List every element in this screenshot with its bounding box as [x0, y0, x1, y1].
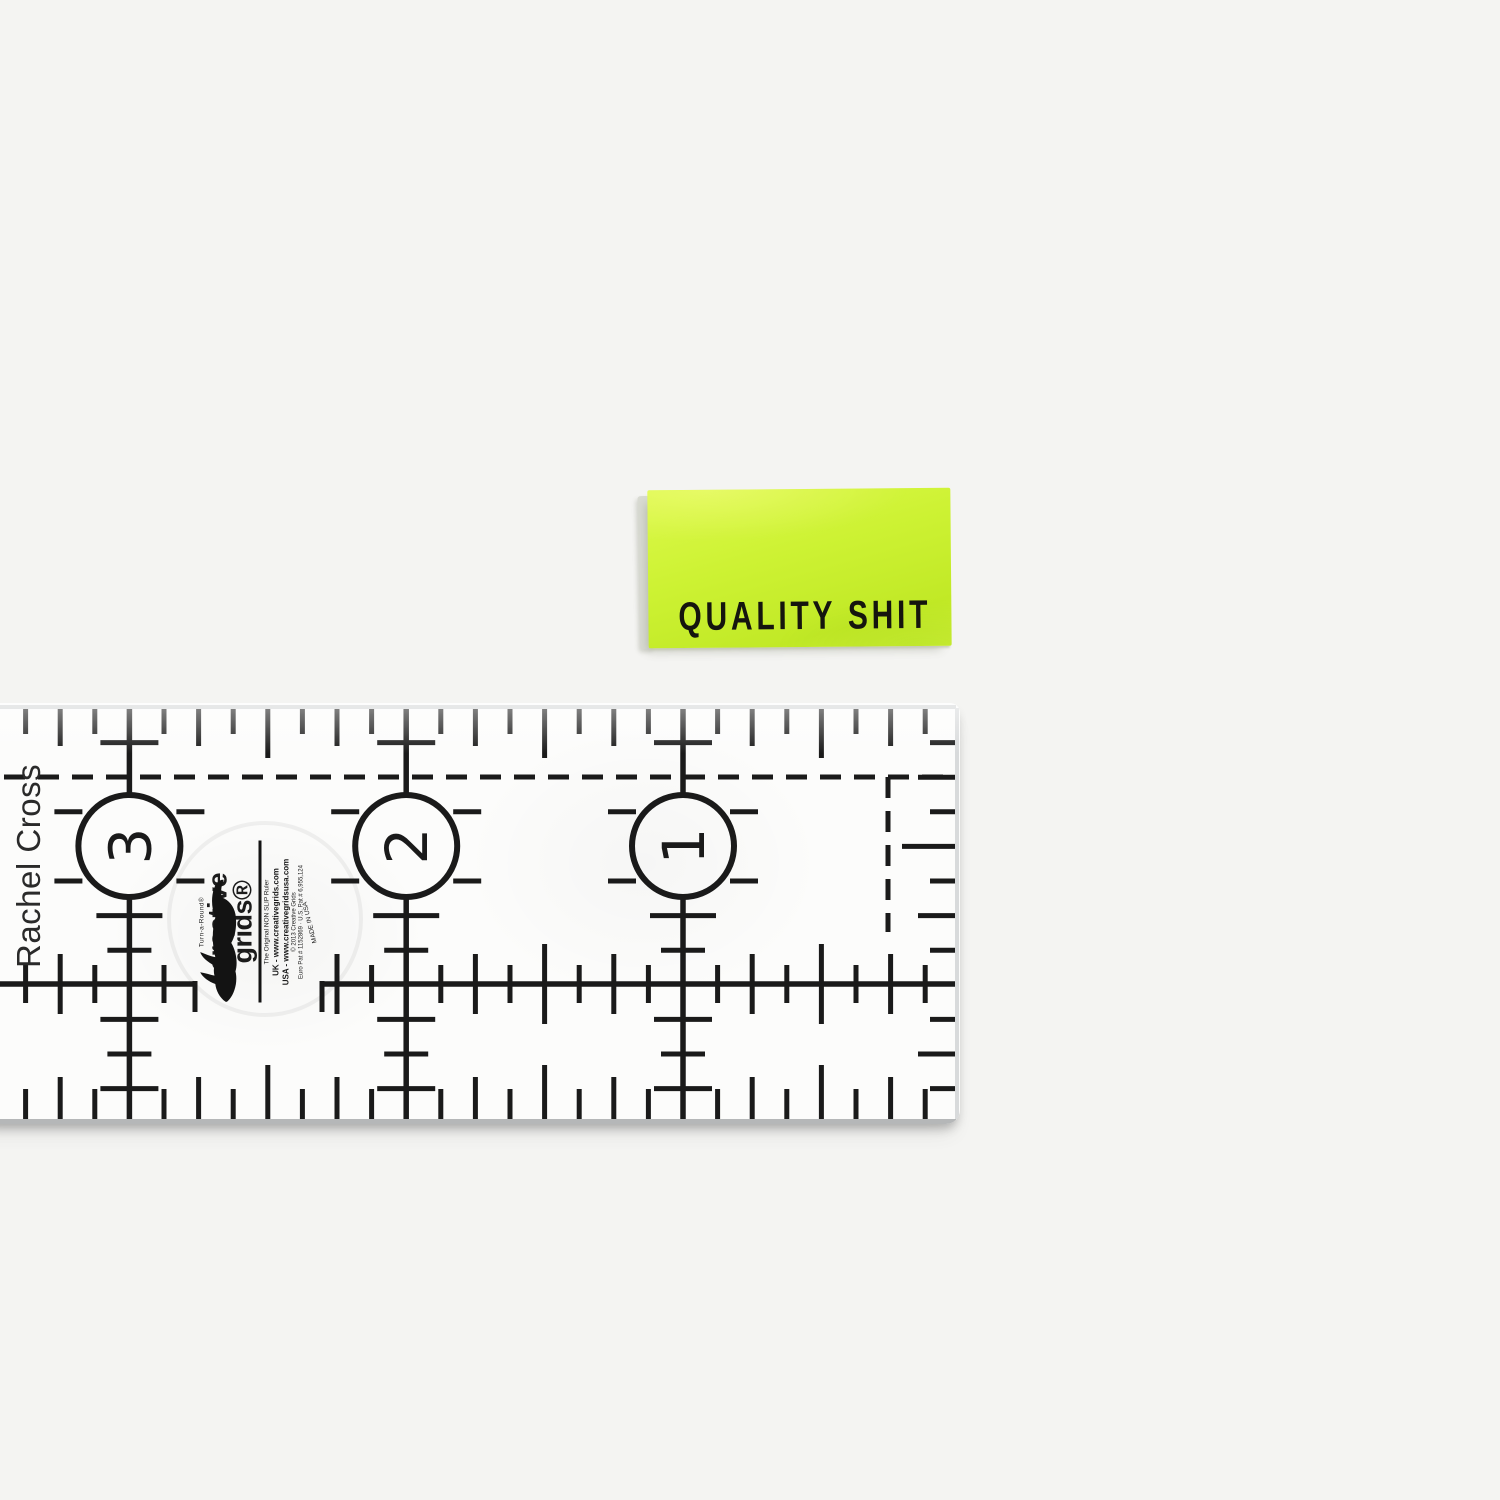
product-photo: { "page": { "background": "#f4f4f2" }, "…	[0, 0, 1500, 1500]
quilting-ruler: 123 Rachel Cross Turn-a-Round® creative …	[0, 703, 960, 1124]
brand-uk-url: UK - www.creativegrids.com	[271, 868, 281, 976]
svg-text:3: 3	[96, 828, 164, 865]
brand-usa-url: USA - www.creativegridsusa.com	[281, 859, 291, 986]
svg-text:1: 1	[650, 828, 718, 865]
ruler-name-text: Rachel Cross	[10, 764, 48, 968]
brand-patents: Euro Pat # 1152869 · U.S. Pat # 6,955,12…	[298, 865, 305, 979]
quality-shit-label: QUALITY SHIT	[647, 488, 951, 649]
brand-copyright: © 2013 Creative Grids	[291, 892, 298, 951]
ruler-markings: 123	[0, 703, 960, 1124]
hare-icon	[199, 865, 241, 1015]
svg-text:2: 2	[373, 828, 441, 865]
label-text: QUALITY SHIT	[678, 595, 931, 637]
brand-tagline: The Original NON SLIP Ruler	[264, 880, 271, 965]
creative-grids-logo: Turn-a-Round® creative grids® The Origin…	[199, 830, 331, 1015]
brand-divider	[259, 841, 262, 1003]
